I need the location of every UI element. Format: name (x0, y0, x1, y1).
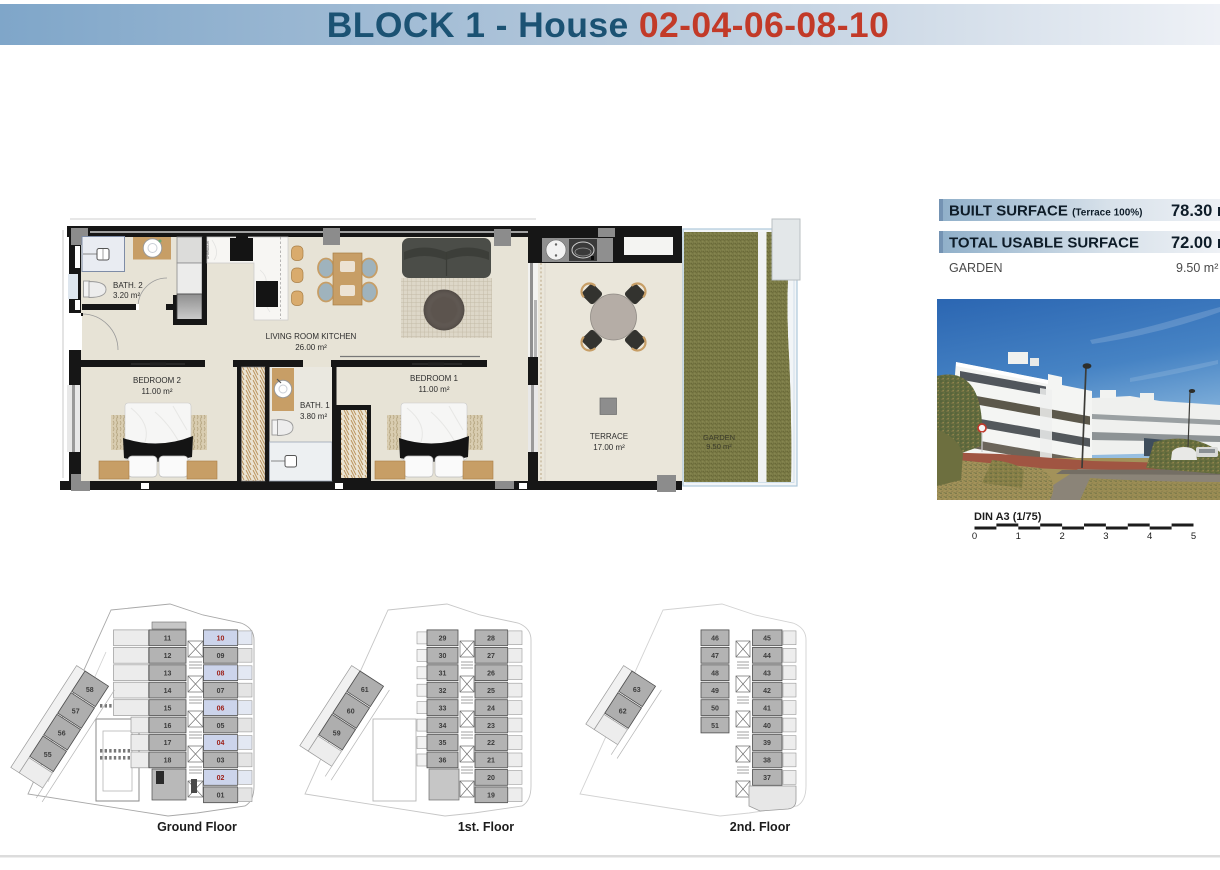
svg-text:58: 58 (86, 687, 94, 694)
svg-text:29: 29 (439, 636, 447, 643)
svg-text:LIVING ROOM KITCHEN: LIVING ROOM KITCHEN (266, 332, 357, 341)
svg-text:46: 46 (711, 636, 719, 643)
svg-text:31: 31 (439, 670, 447, 677)
svg-text:18: 18 (164, 758, 172, 765)
svg-text:TOTAL USABLE SURFACE: TOTAL USABLE SURFACE (949, 235, 1139, 252)
svg-text:44: 44 (763, 653, 771, 660)
svg-text:3.80 m²: 3.80 m² (300, 412, 327, 421)
svg-text:07: 07 (217, 688, 225, 695)
svg-text:03: 03 (217, 758, 225, 765)
svg-text:41: 41 (763, 705, 771, 712)
svg-text:Ground Floor: Ground Floor (157, 820, 237, 834)
svg-text:17: 17 (164, 740, 172, 747)
svg-text:01: 01 (217, 793, 225, 800)
svg-text:16: 16 (164, 723, 172, 730)
svg-text:14: 14 (164, 688, 172, 695)
svg-text:56: 56 (58, 730, 66, 737)
svg-text:11: 11 (164, 636, 172, 643)
svg-text:36: 36 (439, 758, 447, 765)
svg-text:33: 33 (439, 705, 447, 712)
svg-text:BEDROOM 2: BEDROOM 2 (133, 376, 182, 385)
svg-text:34: 34 (439, 723, 447, 730)
svg-text:2nd. Floor: 2nd. Floor (730, 820, 791, 834)
svg-text:04: 04 (217, 740, 225, 747)
svg-text:DIN A3 (1/75): DIN A3 (1/75) (974, 511, 1042, 523)
svg-text:17.00 m²: 17.00 m² (593, 443, 625, 452)
svg-text:20: 20 (487, 775, 495, 782)
svg-text:9.50 m²: 9.50 m² (1176, 261, 1218, 275)
svg-text:13: 13 (164, 670, 172, 677)
svg-text:11.00 m²: 11.00 m² (419, 385, 450, 394)
svg-text:GARDEN: GARDEN (703, 433, 735, 442)
svg-text:5: 5 (1191, 531, 1196, 542)
svg-text:19: 19 (487, 793, 495, 800)
svg-text:BATH. 1: BATH. 1 (300, 401, 330, 410)
svg-text:60: 60 (347, 709, 355, 716)
svg-text:08: 08 (217, 670, 225, 677)
svg-text:72.00 m²: 72.00 m² (1171, 234, 1220, 252)
svg-text:25: 25 (487, 688, 495, 695)
svg-text:09: 09 (217, 653, 225, 660)
svg-text:38: 38 (763, 758, 771, 765)
svg-text:51: 51 (711, 723, 719, 730)
svg-text:30: 30 (439, 653, 447, 660)
svg-text:21: 21 (487, 758, 495, 765)
svg-text:26: 26 (487, 670, 495, 677)
svg-text:62: 62 (619, 709, 627, 716)
svg-text:27: 27 (487, 653, 495, 660)
svg-text:2: 2 (1059, 531, 1064, 542)
svg-text:GARDEN: GARDEN (949, 261, 1002, 275)
svg-text:37: 37 (763, 775, 771, 782)
svg-text:TERRACE: TERRACE (590, 432, 628, 441)
svg-text:05: 05 (217, 723, 225, 730)
svg-text:02: 02 (217, 775, 225, 782)
svg-text:26.00 m²: 26.00 m² (295, 343, 327, 352)
svg-text:0: 0 (972, 531, 977, 542)
svg-text:28: 28 (487, 636, 495, 643)
svg-text:59: 59 (333, 730, 341, 737)
svg-text:BLOCK 1 - House 02-04-06-08-10: BLOCK 1 - House 02-04-06-08-10 (327, 5, 889, 45)
svg-text:24: 24 (487, 705, 495, 712)
svg-text:12: 12 (164, 653, 172, 660)
svg-text:43: 43 (763, 670, 771, 677)
svg-text:15: 15 (164, 705, 172, 712)
svg-text:11.00 m²: 11.00 m² (142, 387, 173, 396)
svg-text:3.20 m²: 3.20 m² (113, 291, 140, 300)
svg-text:45: 45 (763, 636, 771, 643)
svg-text:50: 50 (711, 705, 719, 712)
svg-text:06: 06 (217, 705, 225, 712)
svg-text:BATH. 2: BATH. 2 (113, 281, 143, 290)
svg-text:39: 39 (763, 740, 771, 747)
svg-text:10: 10 (217, 636, 225, 643)
svg-text:22: 22 (487, 740, 495, 747)
svg-text:4: 4 (1147, 531, 1152, 542)
svg-text:57: 57 (72, 709, 80, 716)
svg-text:UHBRAULIK: UHBRAULIK (206, 240, 210, 259)
svg-text:63: 63 (633, 687, 641, 694)
svg-text:48: 48 (711, 670, 719, 677)
svg-text:78.30 m²: 78.30 m² (1171, 202, 1220, 220)
svg-text:32: 32 (439, 688, 447, 695)
svg-text:3: 3 (1103, 531, 1108, 542)
svg-text:23: 23 (487, 723, 495, 730)
svg-text:1st. Floor: 1st. Floor (458, 820, 514, 834)
svg-text:61: 61 (361, 687, 369, 694)
svg-text:55: 55 (44, 752, 52, 759)
svg-text:40: 40 (763, 723, 771, 730)
svg-text:47: 47 (711, 653, 719, 660)
svg-text:35: 35 (439, 740, 447, 747)
svg-text:9.50 m²: 9.50 m² (706, 442, 732, 451)
svg-text:BEDROOM 1: BEDROOM 1 (410, 374, 459, 383)
svg-text:1: 1 (1016, 531, 1021, 542)
svg-text:49: 49 (711, 688, 719, 695)
svg-text:42: 42 (763, 688, 771, 695)
